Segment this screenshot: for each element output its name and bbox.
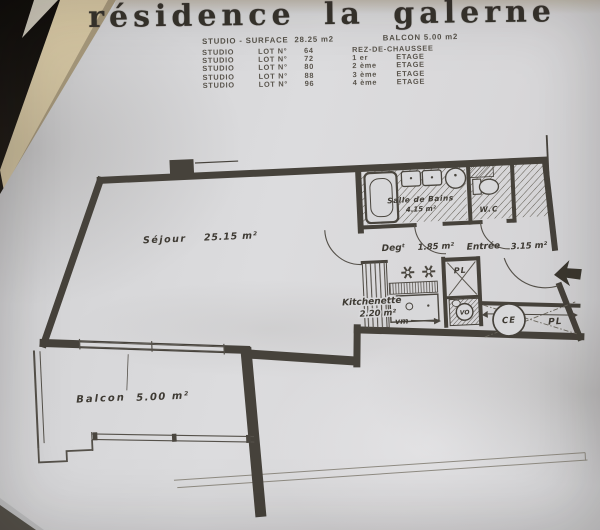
- railing-tick: [172, 434, 177, 442]
- door-arc-entrance: [504, 256, 558, 290]
- entree-label: Entrée: [466, 240, 500, 253]
- door-arc-sejour: [325, 229, 363, 267]
- wc-west-wall: [468, 164, 471, 223]
- degagement-label: Degᵗ: [381, 243, 405, 254]
- summary-balcon: BALCON 5.00 m2: [383, 32, 458, 42]
- closet-north-wall: [445, 258, 477, 259]
- lot-type: STUDIO: [203, 81, 259, 90]
- room-labels: Séjour 25.15 m² Salle de Bains 4.15 m² W…: [68, 189, 566, 407]
- pillar-tick-line: [196, 161, 238, 163]
- railing-tick: [246, 435, 251, 443]
- balcony-west-outer: [34, 351, 38, 449]
- lot-label: LOT N°: [259, 80, 305, 89]
- east-wall-lower: [560, 285, 580, 339]
- wc-east-wall: [512, 162, 515, 221]
- bathroom-west-wall: [358, 169, 361, 231]
- vm-label: vm: [395, 316, 409, 326]
- balcon-label: Balcon: [76, 392, 126, 405]
- railing-tick: [93, 432, 98, 440]
- vide-ordures-label: VO: [460, 309, 470, 316]
- kitchenette-area: 2.20 m²: [359, 308, 396, 320]
- window-bay: [79, 332, 224, 361]
- west-wall: [36, 180, 107, 344]
- lot-floor: 4 èmeETAGE: [353, 78, 426, 88]
- degagement-area: 1.85 m²: [417, 241, 454, 253]
- balcon-label-leader: [125, 354, 130, 390]
- balcony-west-inner: [40, 351, 44, 443]
- lots-table: STUDIO LOT N° 64 REZ-DE-CHAUSSEE STUDIO …: [202, 44, 465, 90]
- sejour-area: 25.15 m²: [204, 230, 258, 243]
- placard-top-label: PL: [454, 266, 467, 276]
- placard-right-label: PL: [548, 317, 563, 328]
- entree-area: 3.15 m²: [511, 241, 548, 253]
- kitchen-east-wall: [443, 259, 446, 326]
- party-wall: [246, 353, 260, 512]
- bathroom-south-wall-2: [445, 223, 471, 224]
- sejour-label: Séjour: [143, 233, 187, 246]
- burner-icon: [422, 266, 435, 278]
- salle-de-bains-area: 4.15 m²: [406, 205, 437, 214]
- round-lavabo: [445, 168, 466, 189]
- balcon-area: 5.00 m²: [136, 390, 190, 403]
- south-step-wall: [246, 349, 354, 366]
- floor-plan-drawing: Séjour 25.15 m² Salle de Bains 4.15 m² W…: [18, 107, 597, 530]
- burner-icon: [401, 267, 414, 279]
- wc-label: W.C: [479, 204, 498, 214]
- bathroom-south-wall: [361, 225, 415, 227]
- pillar: [169, 159, 194, 177]
- toilet-bowl: [479, 179, 499, 195]
- photo-of-floor-plan: résidence la galerne STUDIO - SURFACE 28…: [0, 0, 600, 530]
- balcony-steps: [38, 440, 93, 462]
- closet-divider-wall: [447, 296, 479, 297]
- lot-number: 96: [305, 79, 333, 88]
- cooktop: [389, 281, 437, 294]
- duct-box: [467, 165, 493, 177]
- chauffe-eau-label: CE: [502, 316, 516, 327]
- lower-facade-lines: [174, 453, 588, 488]
- entrance-arrow-icon: [553, 260, 582, 287]
